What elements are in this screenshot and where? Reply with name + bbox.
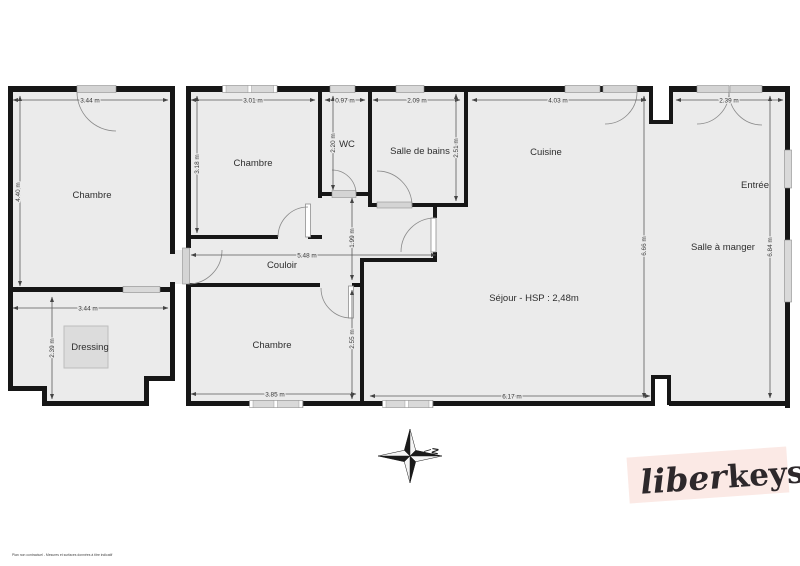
room-label-chambre-3: Chambre	[252, 340, 291, 351]
room-label-wc: WC	[339, 139, 355, 150]
dim-couloir-width: 5.48 m	[297, 253, 317, 260]
room-label-cuisine: Cuisine	[530, 147, 562, 158]
dim-chambre3-height: 2.55 m	[349, 329, 356, 349]
dim-cuisine-width: 4.03 m	[548, 98, 568, 105]
dim-entree-width: 2.39 m	[719, 98, 739, 105]
dim-dressing-width: 3.44 m	[78, 306, 98, 313]
room-label-salle-de-bains: Salle de bains	[390, 146, 450, 157]
footer-disclaimer: Plan non contractuel - Mesures et surfac…	[12, 553, 112, 557]
floor-plan: 3.44 m 3.01 m 0.97 m 2.09 m 4.03 m 2.39 …	[0, 0, 800, 566]
dim-sejour-width: 6.17 m	[502, 394, 522, 401]
dim-chambre2-width: 3.01 m	[243, 98, 263, 105]
dim-chambre3-width: 3.85 m	[265, 392, 285, 399]
room-label-sejour: Séjour - HSP : 2,48m	[489, 293, 579, 304]
room-label-chambre-2: Chambre	[233, 158, 272, 169]
logo-text-keys: keys	[726, 454, 800, 495]
dim-sejour-height: 6.66 m	[641, 236, 648, 256]
dim-chambre2-height: 3.18 m	[194, 154, 201, 174]
room-label-couloir: Couloir	[267, 260, 297, 271]
room-label-dressing: Dressing	[71, 342, 109, 353]
compass-icon: N	[378, 429, 442, 483]
dim-sdb-width: 2.09 m	[407, 98, 427, 105]
dim-chambre1-width: 3.44 m	[80, 98, 100, 105]
floor-areas	[10, 90, 786, 403]
liberkeys-logo: liberkeys	[627, 445, 800, 503]
dim-chambre1-height: 4.40 m	[15, 182, 22, 202]
room-label-salle-a-manger: Salle à manger	[691, 242, 755, 253]
dim-couloir-height: 1.99 m	[349, 228, 356, 248]
logo-text-liber: liber	[639, 457, 731, 502]
room-label-chambre-1: Chambre	[72, 190, 111, 201]
room-label-entree: Entrée	[741, 180, 769, 191]
dim-salle-a-manger-height: 6.84 m	[767, 237, 774, 257]
dim-sdb-height: 2.51 m	[453, 138, 460, 158]
dim-dressing-height: 2.39 m	[49, 338, 56, 358]
dim-wc-width: 0.97 m	[335, 98, 355, 105]
dim-wc-height: 2.20 m	[330, 133, 337, 153]
